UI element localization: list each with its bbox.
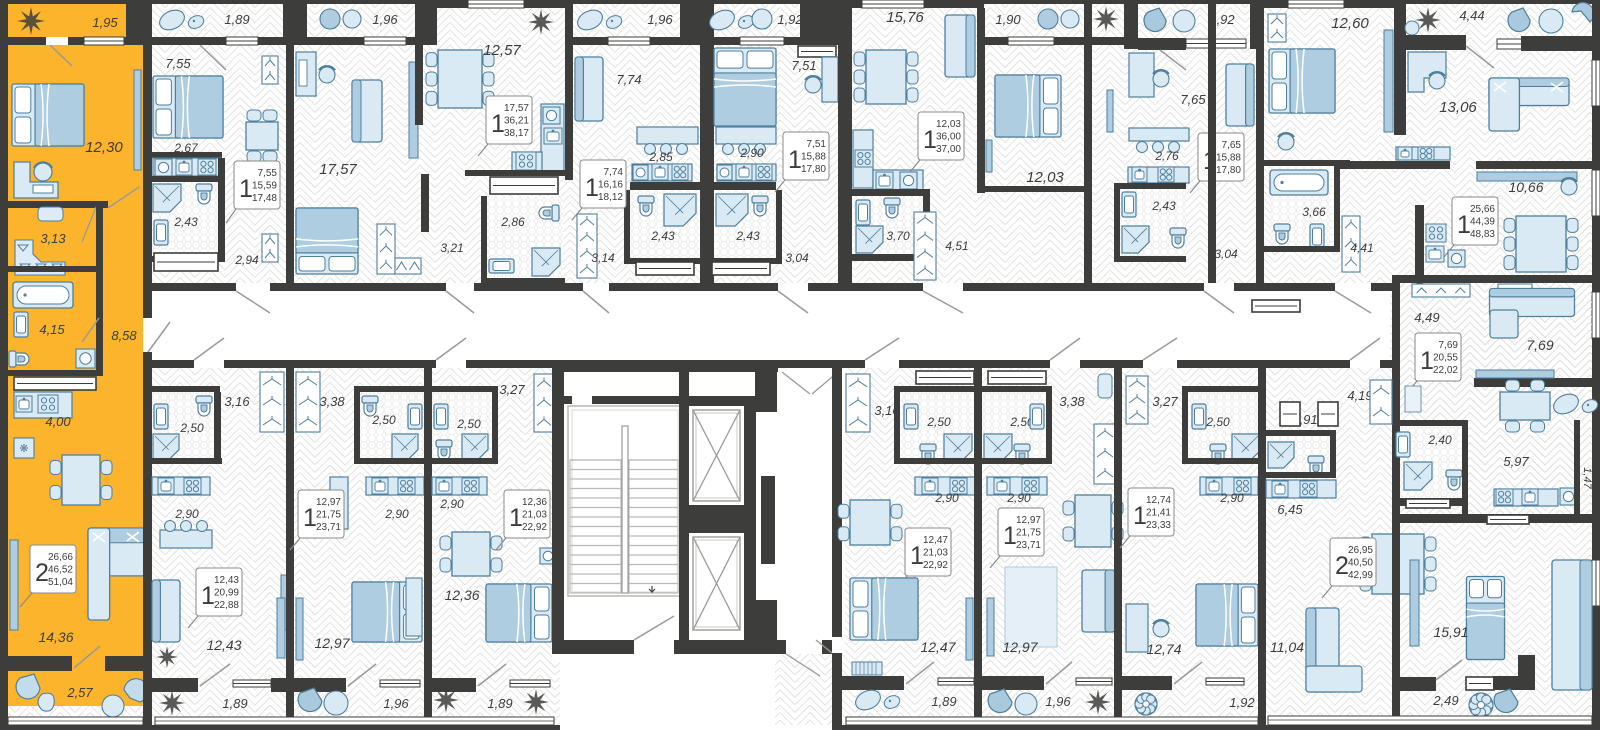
- svg-text:7,51: 7,51: [807, 139, 827, 150]
- svg-text:3,66: 3,66: [1302, 205, 1326, 219]
- svg-text:38,17: 38,17: [504, 128, 529, 139]
- svg-text:16,16: 16,16: [598, 180, 623, 191]
- svg-text:12,74: 12,74: [1146, 641, 1181, 657]
- svg-text:4,15: 4,15: [39, 322, 65, 337]
- svg-text:7,69: 7,69: [1526, 337, 1553, 353]
- svg-text:46,52: 46,52: [48, 565, 73, 576]
- svg-text:4,19: 4,19: [1347, 388, 1372, 403]
- svg-text:40,50: 40,50: [1348, 558, 1373, 569]
- svg-text:17,57: 17,57: [504, 103, 529, 114]
- svg-text:44,39: 44,39: [1470, 217, 1495, 228]
- svg-text:2,94: 2,94: [234, 253, 259, 267]
- svg-text:36,21: 36,21: [504, 116, 529, 127]
- svg-text:20,99: 20,99: [214, 588, 239, 599]
- svg-text:22,88: 22,88: [214, 600, 239, 611]
- svg-text:3,13: 3,13: [40, 231, 66, 246]
- svg-text:18,12: 18,12: [598, 192, 623, 203]
- svg-text:2,90: 2,90: [174, 507, 199, 521]
- svg-text:20,55: 20,55: [1433, 353, 1458, 364]
- svg-text:12,74: 12,74: [1146, 495, 1171, 506]
- svg-text:21,75: 21,75: [1016, 528, 1041, 539]
- svg-text:1: 1: [239, 175, 253, 203]
- svg-text:3,16: 3,16: [224, 394, 250, 409]
- svg-text:2,50: 2,50: [926, 415, 951, 429]
- svg-text:1: 1: [1420, 347, 1434, 375]
- svg-text:22,02: 22,02: [1433, 365, 1458, 376]
- svg-text:14,36: 14,36: [38, 629, 73, 645]
- svg-text:2,43: 2,43: [735, 229, 760, 243]
- svg-text:15,88: 15,88: [1216, 153, 1241, 164]
- svg-text:1: 1: [303, 504, 317, 532]
- svg-text:2,40: 2,40: [1427, 433, 1452, 447]
- svg-text:4,44: 4,44: [1459, 8, 1484, 23]
- svg-text:15,91: 15,91: [1433, 624, 1468, 640]
- svg-text:1,96: 1,96: [647, 12, 673, 27]
- svg-text:2,50: 2,50: [371, 413, 396, 427]
- svg-text:3,27: 3,27: [499, 382, 525, 397]
- svg-text:12,97: 12,97: [316, 497, 341, 508]
- svg-text:12,03: 12,03: [1026, 169, 1064, 186]
- svg-text:12,36: 12,36: [522, 497, 547, 508]
- svg-text:12,47: 12,47: [923, 535, 948, 546]
- svg-text:25,66: 25,66: [1470, 204, 1495, 215]
- svg-text:15,76: 15,76: [886, 9, 924, 26]
- svg-text:4,51: 4,51: [945, 239, 968, 253]
- svg-text:12,43: 12,43: [206, 637, 241, 653]
- svg-text:2,57: 2,57: [66, 685, 93, 700]
- svg-text:7,55: 7,55: [165, 56, 191, 71]
- svg-text:12,57: 12,57: [483, 42, 521, 59]
- svg-text:1,89: 1,89: [222, 696, 247, 711]
- svg-text:7,65: 7,65: [1222, 140, 1242, 151]
- svg-text:3,14: 3,14: [591, 251, 615, 265]
- svg-text:1: 1: [201, 582, 215, 610]
- svg-text:2,76: 2,76: [1154, 149, 1179, 163]
- svg-text:1,89: 1,89: [487, 696, 512, 711]
- svg-text:7,51: 7,51: [791, 58, 816, 73]
- svg-text:42,99: 42,99: [1348, 570, 1373, 581]
- svg-text:22,92: 22,92: [923, 560, 948, 571]
- svg-text:4,00: 4,00: [45, 414, 71, 429]
- svg-text:7,69: 7,69: [1439, 340, 1459, 351]
- svg-text:1: 1: [585, 174, 599, 202]
- svg-text:12,47: 12,47: [920, 639, 956, 655]
- svg-text:2,43: 2,43: [173, 215, 198, 229]
- svg-text:26,95: 26,95: [1348, 545, 1373, 556]
- svg-text:1: 1: [1457, 211, 1471, 239]
- svg-text:4,41: 4,41: [1350, 241, 1373, 255]
- svg-text:23,71: 23,71: [1016, 540, 1041, 551]
- svg-text:48,83: 48,83: [1470, 229, 1495, 240]
- svg-text:2,90: 2,90: [1006, 491, 1031, 505]
- svg-text:1,95: 1,95: [92, 15, 118, 30]
- svg-text:51,04: 51,04: [48, 577, 73, 588]
- svg-text:21,03: 21,03: [923, 548, 948, 559]
- svg-text:2,49: 2,49: [1432, 693, 1458, 708]
- svg-text:12,60: 12,60: [1331, 15, 1369, 32]
- svg-text:5,97: 5,97: [1503, 454, 1529, 469]
- svg-text:3,04: 3,04: [785, 251, 809, 265]
- svg-text:1: 1: [923, 126, 937, 154]
- svg-text:2,50: 2,50: [1205, 415, 1230, 429]
- svg-text:7,74: 7,74: [616, 72, 641, 87]
- svg-text:17,48: 17,48: [252, 193, 277, 204]
- svg-text:13,06: 13,06: [1439, 99, 1477, 116]
- svg-text:❋: ❋: [19, 443, 28, 455]
- svg-text:1: 1: [491, 110, 505, 138]
- svg-text:17,80: 17,80: [1216, 165, 1241, 176]
- svg-text:2,43: 2,43: [650, 229, 675, 243]
- svg-text:3,38: 3,38: [319, 394, 345, 409]
- svg-text:1: 1: [1003, 522, 1017, 550]
- svg-text:21,41: 21,41: [1146, 508, 1171, 519]
- svg-text:2,50: 2,50: [179, 421, 204, 435]
- svg-text:36,00: 36,00: [936, 132, 961, 143]
- svg-text:6,45: 6,45: [1277, 502, 1303, 517]
- svg-text:3,21: 3,21: [440, 241, 463, 255]
- svg-text:12,36: 12,36: [444, 587, 479, 603]
- svg-text:15,88: 15,88: [801, 152, 826, 163]
- svg-text:12,97: 12,97: [314, 635, 350, 651]
- svg-text:23,33: 23,33: [1146, 520, 1171, 531]
- svg-text:7,65: 7,65: [1180, 92, 1206, 107]
- svg-text:2,86: 2,86: [500, 215, 525, 229]
- svg-text:3,70: 3,70: [886, 229, 910, 243]
- svg-text:10,66: 10,66: [1508, 179, 1543, 195]
- svg-text:1,92: 1,92: [1229, 695, 1255, 710]
- svg-text:2,90: 2,90: [439, 497, 464, 511]
- svg-text:23,71: 23,71: [316, 522, 341, 533]
- svg-text:2,85: 2,85: [648, 150, 673, 164]
- svg-text:37,00: 37,00: [936, 144, 961, 155]
- svg-text:21,75: 21,75: [316, 510, 341, 521]
- svg-text:1: 1: [509, 504, 523, 532]
- svg-text:12,97: 12,97: [1002, 639, 1038, 655]
- svg-text:2,43: 2,43: [1151, 199, 1176, 213]
- svg-text:22,92: 22,92: [522, 522, 547, 533]
- svg-text:7,74: 7,74: [604, 167, 624, 178]
- svg-text:12,43: 12,43: [214, 575, 239, 586]
- svg-text:12,97: 12,97: [1016, 515, 1041, 526]
- svg-text:17,80: 17,80: [801, 164, 826, 175]
- svg-text:3,27: 3,27: [1152, 394, 1178, 409]
- svg-text:2,90: 2,90: [384, 507, 409, 521]
- svg-text:3,04: 3,04: [1214, 247, 1238, 261]
- svg-text:21,03: 21,03: [522, 510, 547, 521]
- svg-text:11,04: 11,04: [1270, 639, 1304, 655]
- svg-text:2,50: 2,50: [456, 417, 481, 431]
- svg-text:1,90: 1,90: [995, 12, 1021, 27]
- svg-text:1,47: 1,47: [1581, 467, 1593, 489]
- svg-text:7,55: 7,55: [258, 168, 278, 179]
- svg-text:2: 2: [35, 559, 49, 587]
- svg-text:12,03: 12,03: [936, 119, 961, 130]
- svg-text:1: 1: [910, 542, 924, 570]
- svg-text:2: 2: [1335, 552, 1349, 580]
- svg-text:2,90: 2,90: [934, 491, 959, 505]
- svg-text:1,96: 1,96: [1045, 694, 1071, 709]
- svg-text:1,96: 1,96: [383, 696, 409, 711]
- svg-text:1,89: 1,89: [224, 12, 249, 27]
- svg-text:1,89: 1,89: [931, 694, 956, 709]
- svg-text:1,92: 1,92: [777, 12, 803, 27]
- svg-text:17,57: 17,57: [319, 161, 357, 178]
- svg-text:2,90: 2,90: [739, 146, 764, 160]
- svg-text:26,66: 26,66: [48, 552, 73, 563]
- svg-text:1,96: 1,96: [372, 12, 398, 27]
- svg-text:1: 1: [1133, 502, 1147, 530]
- svg-text:12,30: 12,30: [85, 139, 123, 156]
- svg-text:8,58: 8,58: [111, 328, 137, 343]
- svg-text:4,49: 4,49: [1414, 310, 1439, 325]
- svg-text:1: 1: [788, 146, 802, 174]
- svg-text:3,38: 3,38: [1059, 394, 1085, 409]
- svg-text:15,59: 15,59: [252, 181, 277, 192]
- svg-text:2,90: 2,90: [1219, 491, 1244, 505]
